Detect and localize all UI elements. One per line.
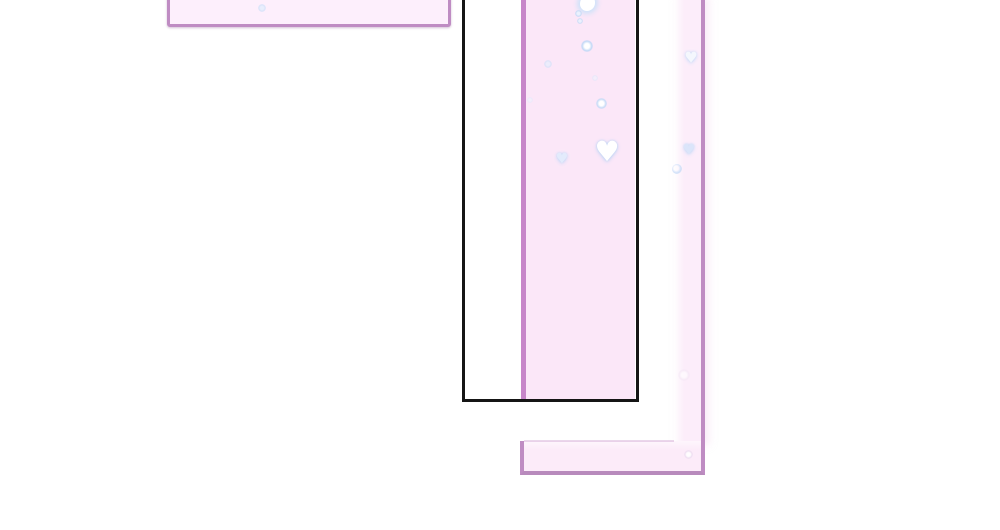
panel-bottom-pink-bar [520, 441, 705, 475]
comic-page: ♥♥♥♥ [0, 0, 1000, 530]
panel-top-left-card [167, 0, 451, 27]
panel-bottom-bar-top-edge [524, 440, 674, 442]
panel-black-frame [462, 0, 639, 402]
panel-right-pink-strip [674, 0, 705, 445]
